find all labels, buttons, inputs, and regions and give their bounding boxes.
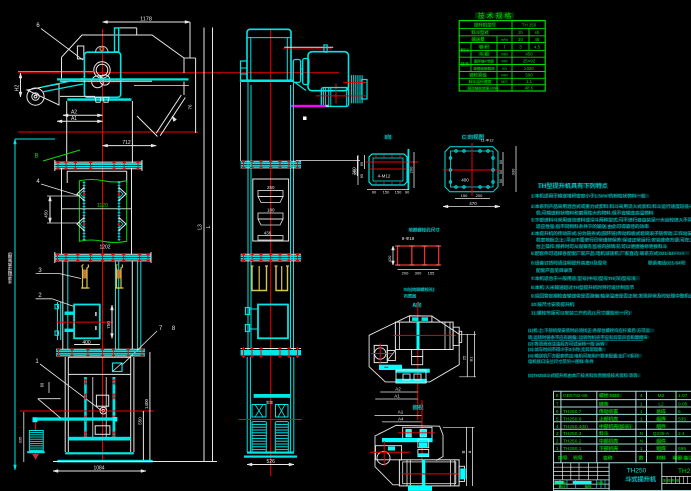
svg-text:组件: 组件	[656, 423, 666, 430]
svg-text:1: 1	[640, 416, 643, 422]
svg-text:1: 1	[640, 446, 643, 452]
svg-text:9.返回管定期检查输送带是否跑偏,轴承温度是否正常,发现异常: 9.返回管定期检查输送带是否跑偏,轴承温度是否正常,发现异常及时处理中整机运转系…	[531, 293, 691, 300]
svg-text:L2: L2	[658, 402, 664, 408]
svg-text:25: 25	[462, 355, 467, 360]
svg-text:420: 420	[387, 255, 392, 262]
svg-text:序号: 序号	[558, 454, 568, 461]
svg-text:200: 200	[476, 193, 483, 198]
svg-text:电机接口法兰尺寸见另一图样 条件: 电机接口法兰尺寸见另一图样 条件	[528, 358, 594, 365]
svg-text:单根破断载荷: 单根破断载荷	[473, 66, 495, 71]
svg-text:A2: A2	[71, 110, 77, 116]
svg-text:11.螺栓节距可以安装二户的孔(L尺寸螺栓长一尺): 11.螺栓节距可以安装二户的孔(L尺寸螺栓长一尺)	[531, 310, 630, 317]
svg-text:料斗: 料斗	[599, 430, 609, 437]
svg-text:48.5: 48.5	[525, 86, 534, 91]
svg-text:L3: L3	[198, 224, 204, 230]
svg-text:8-Φ18: 8-Φ18	[402, 236, 415, 241]
svg-text:容 积: 容 积	[479, 43, 490, 50]
svg-text:1178: 1178	[140, 17, 152, 23]
svg-text:组焊: 组焊	[656, 445, 666, 452]
svg-text:1202: 1202	[99, 245, 110, 251]
svg-text:9.05: 9.05	[678, 402, 688, 408]
svg-text:90: 90	[372, 190, 377, 195]
svg-text:sh: sh	[535, 30, 540, 35]
svg-text:(1)机.上.下部机架安装时必须找正,各部位螺栓均应拧紧后: (1)机.上.下部机架安装时必须找正,各部位螺栓均应拧紧后 方可运	[528, 327, 650, 334]
svg-text:中部机壳: 中部机壳	[599, 438, 618, 445]
svg-text:A向: A向	[412, 301, 421, 309]
svg-text:机室地板之上, 平台下面进行日常维修保养,保证正常运行,安装: 机室地板之上, 平台下面进行日常维修保养,保证正常运行,安装维修方便,可在上部工…	[536, 237, 691, 244]
svg-text:1: 1	[640, 402, 643, 408]
svg-text:张: 张	[676, 478, 679, 483]
svg-text:技 术 规 格: 技 术 规 格	[478, 11, 512, 20]
svg-text:A4: A4	[398, 416, 404, 421]
svg-text:第: 第	[663, 478, 666, 483]
svg-text:1400: 1400	[144, 398, 149, 409]
svg-text:76: 76	[188, 104, 193, 110]
svg-text:N: N	[639, 431, 643, 437]
svg-text:1.07: 1.07	[678, 393, 688, 399]
svg-text:链条: 链条	[461, 61, 470, 68]
svg-text:联系电话021-64号: 联系电话021-64号	[648, 260, 686, 267]
svg-text:螺栓 M20: 螺栓 M20	[599, 392, 620, 399]
svg-text:B: B	[461, 450, 466, 453]
svg-text:驱动链轮转速 r/min: 驱动链轮转速 r/min	[468, 86, 499, 91]
svg-text:上部机壳: 上部机壳	[599, 415, 618, 422]
svg-text:7: 7	[556, 402, 559, 408]
svg-text:审核: 审核	[585, 484, 592, 489]
svg-text:TH250.3: TH250.3	[563, 431, 582, 437]
svg-text:组件: 组件	[656, 438, 666, 445]
svg-text:400: 400	[82, 340, 91, 346]
svg-text:代号: 代号	[573, 454, 583, 461]
svg-text:6: 6	[556, 409, 559, 415]
svg-text:535: 535	[678, 416, 686, 422]
svg-text:H件(提升机高度): H件(提升机高度)	[7, 252, 14, 284]
svg-text:200: 200	[402, 271, 409, 276]
svg-text:1120: 1120	[97, 203, 108, 209]
svg-text:zh: zh	[518, 30, 523, 35]
svg-text:TH 250: TH 250	[522, 23, 537, 28]
svg-text:适应性强,宿不同物料条件下的输送,由此可得最佳的效率: 适应性强,宿不同物料条件下的输送,由此可得最佳的效率	[536, 223, 649, 230]
svg-text:150: 150	[383, 190, 390, 195]
svg-text:2: 2	[556, 439, 559, 445]
svg-text:1.本机适用于输送堆积密度小于1.5t/m³的粉粒状物料一般: 1.本机适用于输送堆积密度小于1.5t/m³的粉粒状物料一般	[531, 193, 646, 200]
svg-text:2.4: 2.4	[678, 431, 685, 437]
svg-text:2.本系列产品采用混合式或重力式卸料,料斗采用流入式装料,料: 2.本系列产品采用混合式或重力式卸料,料斗采用流入式装料,料斗运行速度较低一般物…	[531, 203, 691, 210]
svg-text:斗式提升机: 斗式提升机	[625, 475, 657, 483]
svg-text:526: 526	[267, 459, 276, 465]
svg-text:10.按尺寸安装提升机: 10.按尺寸安装提升机	[531, 301, 575, 308]
svg-text:张: 张	[667, 478, 670, 483]
svg-text:50: 50	[499, 179, 503, 183]
svg-text:A1: A1	[71, 116, 77, 122]
svg-text:30: 30	[518, 37, 523, 42]
svg-text:350: 350	[353, 168, 358, 175]
svg-text:A2: A2	[395, 387, 401, 392]
svg-text:330: 330	[511, 168, 516, 175]
svg-text:90: 90	[405, 190, 410, 195]
svg-text:MM: MM	[501, 53, 507, 57]
svg-text:1: 1	[556, 446, 559, 452]
svg-text:下部机壳: 下部机壳	[599, 445, 618, 452]
svg-text:6.设备订货时请注明提升高度H及型号: 6.设备订货时请注明提升高度H及型号	[531, 260, 607, 267]
svg-text:I向: I向	[384, 133, 391, 141]
svg-text:输送量: 输送量	[471, 36, 485, 43]
svg-text:1084: 1084	[93, 466, 104, 472]
svg-text:150: 150	[395, 190, 402, 195]
svg-text:5: 5	[678, 409, 681, 415]
svg-text:共: 共	[671, 478, 674, 483]
svg-text:地脚螺栓孔尺寸: 地脚螺栓孔尺寸	[408, 227, 440, 234]
svg-text:日期: 日期	[597, 480, 603, 485]
svg-text:550: 550	[138, 417, 143, 425]
svg-text:工: 工	[40, 383, 44, 388]
svg-text:KN: KN	[502, 67, 507, 71]
svg-text:布置图: 布置图	[404, 293, 417, 300]
svg-text:750: 750	[106, 321, 111, 329]
svg-text:M/S: M/S	[501, 80, 508, 84]
svg-text:695: 695	[678, 446, 686, 452]
svg-text:l: l	[504, 44, 505, 49]
svg-text:台上操作,保养时可从观察孔监视内部情况,可以便捷维修更换料斗: 台上操作,保养时可从观察孔监视内部情况,可以便捷维修更换料斗	[536, 243, 668, 250]
svg-text:Q235-A: Q235-A	[653, 431, 670, 437]
svg-text:450: 450	[44, 210, 49, 218]
svg-text:L: L	[206, 225, 212, 228]
svg-text:3.下部进料斗采用自流进料或深斗两种型式,可不进行自由装足一: 3.下部进料斗采用自流进料或深斗两种型式,可不进行自由装足一大台较进入不同类型,…	[531, 217, 691, 224]
svg-text:TH型提升机具有下列特点: TH型提升机具有下列特点	[538, 182, 608, 190]
svg-text:材料: 材料	[656, 454, 666, 461]
svg-text:工工: 工工	[266, 401, 274, 405]
svg-text:B1: B1	[469, 356, 474, 362]
svg-text:提升机型号: 提升机型号	[474, 22, 497, 29]
svg-text:料斗: 料斗	[461, 47, 470, 54]
svg-text:A1: A1	[398, 409, 404, 414]
svg-text:组焊: 组焊	[656, 415, 666, 422]
svg-text:m³/h: m³/h	[501, 38, 509, 42]
svg-text:8: 8	[556, 393, 559, 399]
svg-text:470: 470	[469, 201, 477, 206]
svg-text:150: 150	[461, 193, 468, 198]
svg-text:25×92: 25×92	[523, 59, 536, 64]
svg-text:转,运转时链条不应有跑偏, 运转时机壳不应有异常声音和摩擦声: 转,运转时链条不应有跑偏, 运转时机壳不应有异常声音和摩擦声	[528, 334, 648, 341]
svg-text:4: 4	[640, 393, 643, 399]
svg-text:TH250.6: TH250.6	[563, 416, 582, 422]
svg-text:链条: 链条	[599, 401, 609, 408]
svg-text:65: 65	[359, 173, 364, 178]
svg-text:TH250.4(B): TH250.4(B)	[563, 424, 588, 430]
svg-text:链轮直径: 链轮直径	[469, 72, 487, 79]
svg-text:(5)TH250斗式提升机由本厂技术科负责图纸技术资料 等等: (5)TH250斗式提升机由本厂技术科负责图纸技术资料 等等.	[528, 372, 639, 379]
svg-text:总成: 总成	[656, 408, 666, 415]
svg-text:圆环链×节距: 圆环链×节距	[474, 59, 494, 64]
svg-text:400: 400	[461, 178, 469, 183]
svg-text:4-M12: 4-M12	[378, 174, 391, 179]
svg-text:TH250: TH250	[627, 468, 647, 475]
svg-text:配套产品见目录页: 配套产品见目录页	[536, 267, 573, 274]
svg-text:斗 距: 斗 距	[479, 52, 490, 57]
svg-text:4.本提升机的传动形式,分为链条式(圆环链)传动和板式套筒滚: 4.本提升机的传动形式,分为链条式(圆环链)传动和板式套筒滚子链传动,工作站安装…	[531, 230, 691, 237]
svg-text:450: 450	[525, 52, 533, 57]
svg-text:4: 4	[556, 424, 559, 430]
svg-text:1.1: 1.1	[526, 79, 533, 84]
svg-text:Y向(地脚螺栓孔): Y向(地脚螺栓孔)	[404, 286, 435, 293]
svg-text:料斗型式: 料斗型式	[471, 29, 489, 36]
svg-text:传动装置: 传动装置	[599, 408, 618, 415]
svg-text:155: 155	[428, 271, 435, 276]
svg-text:单重 备注: 单重 备注	[673, 454, 691, 461]
svg-text:8.本机 入米输送超过TH型提升机时另行设计制造节: 8.本机 入米输送超过TH型提升机时另行设计制造节	[531, 284, 635, 291]
svg-text:TH250.1: TH250.1	[563, 446, 582, 452]
svg-text:3: 3	[556, 431, 559, 437]
svg-text:4.5: 4.5	[534, 44, 541, 49]
svg-text:M2: M2	[658, 393, 665, 399]
svg-text:B: B	[34, 154, 38, 160]
svg-text:180: 180	[267, 208, 275, 213]
svg-text:200: 200	[409, 166, 414, 173]
svg-text:A1: A1	[394, 394, 400, 399]
svg-text:500: 500	[525, 73, 533, 78]
svg-text:300: 300	[415, 271, 422, 276]
svg-text:GB5782-86: GB5782-86	[563, 393, 588, 399]
svg-text:(3) 试车时间不得少于2小时,无异常现象: (3) 试车时间不得少于2小时,无异常现象	[528, 346, 603, 353]
svg-text:设计: 设计	[559, 484, 566, 489]
svg-text:中部机壳(加长): 中部机壳(加长)	[599, 423, 631, 430]
svg-text:名称: 名称	[603, 454, 613, 461]
svg-text:436: 436	[264, 231, 272, 236]
svg-text:MM: MM	[501, 74, 507, 78]
svg-text:7.本机适合于一般用途,型号(中号)型号TH(深)型号浅: 7.本机适合于一般用途,型号(中号)型号TH(深)型号浅	[531, 275, 636, 282]
svg-text:65: 65	[359, 161, 364, 166]
svg-text:48: 48	[535, 37, 540, 42]
svg-text:H2: H2	[15, 85, 21, 92]
svg-text:11-Φ12: 11-Φ12	[480, 138, 494, 143]
svg-text:712: 712	[122, 140, 131, 146]
svg-text:250: 250	[267, 185, 275, 190]
svg-text:机,可输送粉状物料和磨琢性大的物料,但不宜输送高温物料: 机,可输送粉状物料和磨琢性大的物料,但不宜输送高温物料	[536, 210, 654, 217]
svg-text:数: 数	[639, 454, 644, 461]
svg-text:N: N	[639, 439, 643, 445]
svg-text:料斗运行速度: 料斗运行速度	[469, 79, 492, 84]
svg-text:5.配套件可选择各配套厂家产品,电机减速机,厂家直选 联系方: 5.配套件可选择各配套厂家产品,电机减速机,厂家直选 联系方式:021-64××…	[531, 250, 685, 257]
svg-text:1: 1	[640, 409, 643, 415]
svg-text:≥320: ≥320	[524, 66, 534, 71]
svg-text:5: 5	[556, 416, 559, 422]
svg-text:TH250.2: TH250.2	[563, 439, 582, 445]
svg-text:TH2: TH2	[678, 468, 691, 475]
svg-text:MM: MM	[502, 60, 508, 64]
svg-text:50: 50	[499, 160, 503, 164]
svg-text:50: 50	[499, 170, 503, 174]
svg-text:TH250.7: TH250.7	[563, 409, 582, 415]
svg-text:335: 335	[18, 436, 23, 443]
